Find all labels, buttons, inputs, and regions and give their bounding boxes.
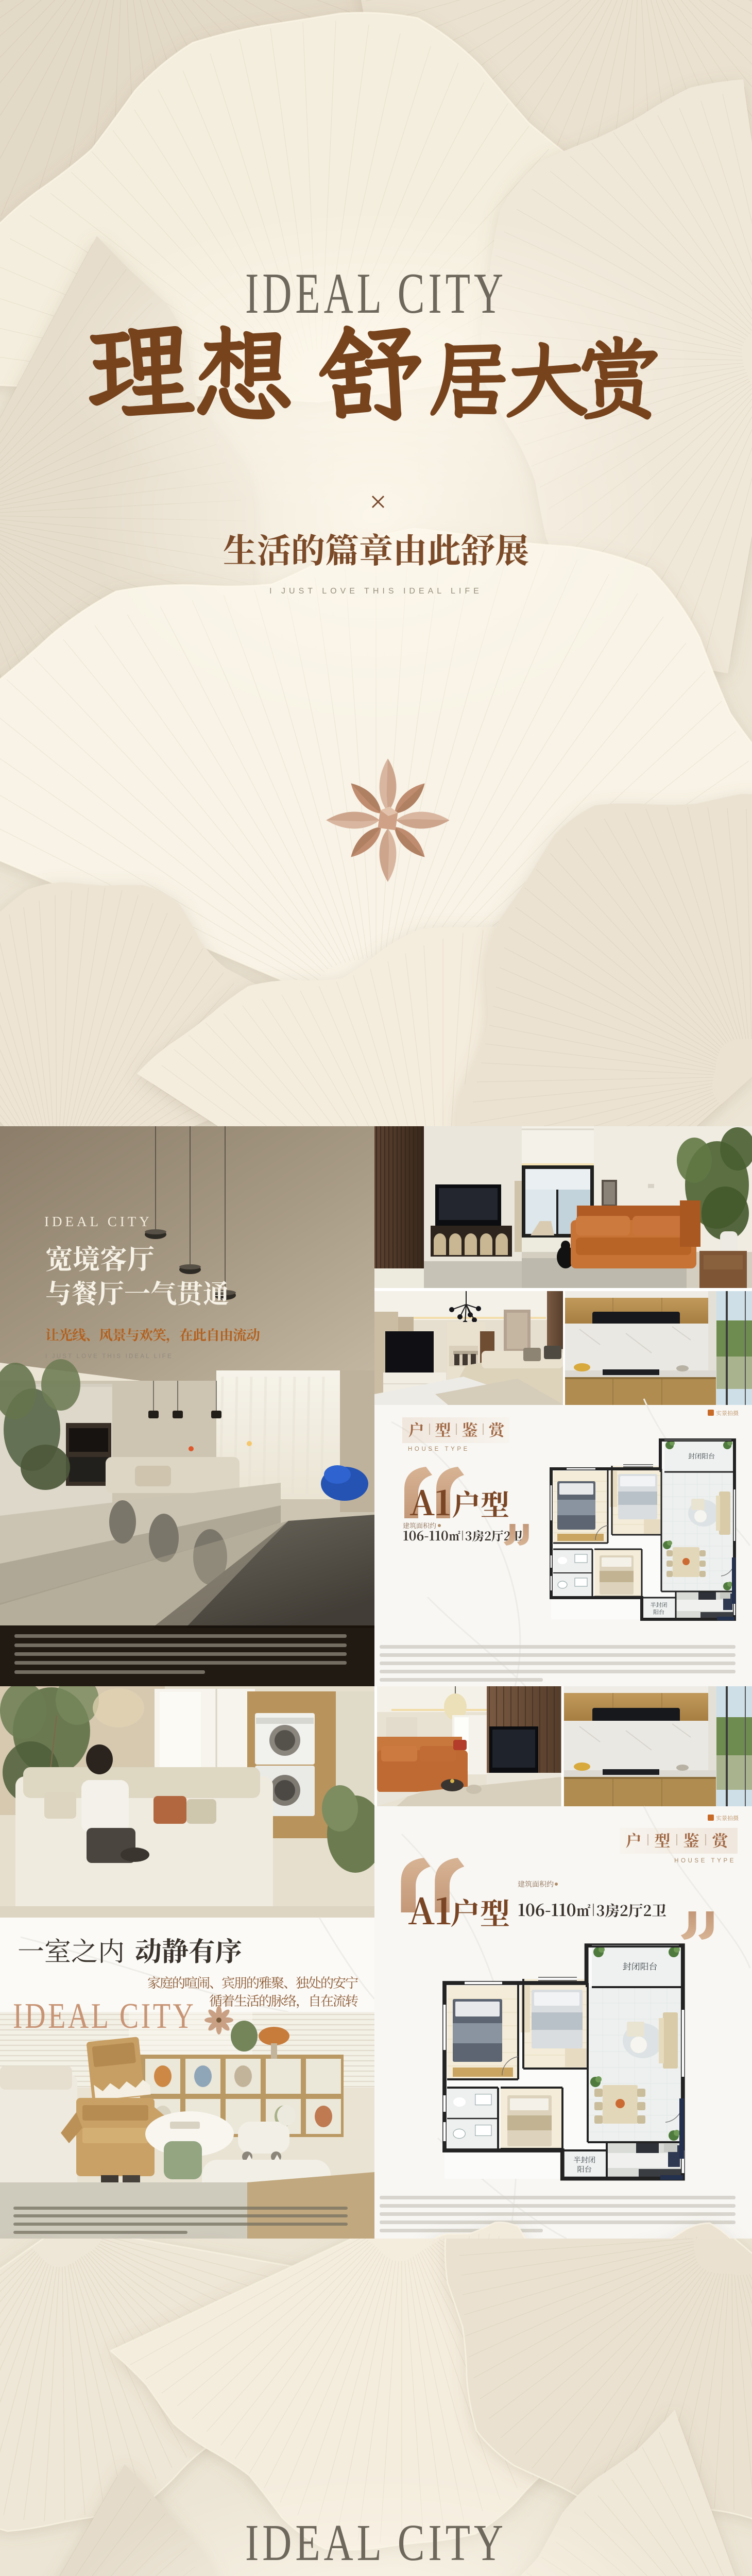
svg-text:IDEAL CITY: IDEAL CITY (44, 1214, 152, 1229)
svg-text:HOUSE TYPE: HOUSE TYPE (674, 1858, 736, 1864)
svg-text:I JUST LOVE THIS IDEAL LIFE: I JUST LOVE THIS IDEAL LIFE (45, 1353, 173, 1360)
svg-text:I JUST LOVE THIS IDEAL LIFE: I JUST LOVE THIS IDEAL LIFE (269, 587, 483, 596)
svg-text:IDEAL CITY: IDEAL CITY (245, 262, 507, 326)
svg-text:IDEAL CITY: IDEAL CITY (245, 2514, 507, 2571)
svg-text:IDEAL CITY: IDEAL CITY (13, 1996, 196, 2036)
svg-text:HOUSE TYPE: HOUSE TYPE (408, 1446, 470, 1452)
